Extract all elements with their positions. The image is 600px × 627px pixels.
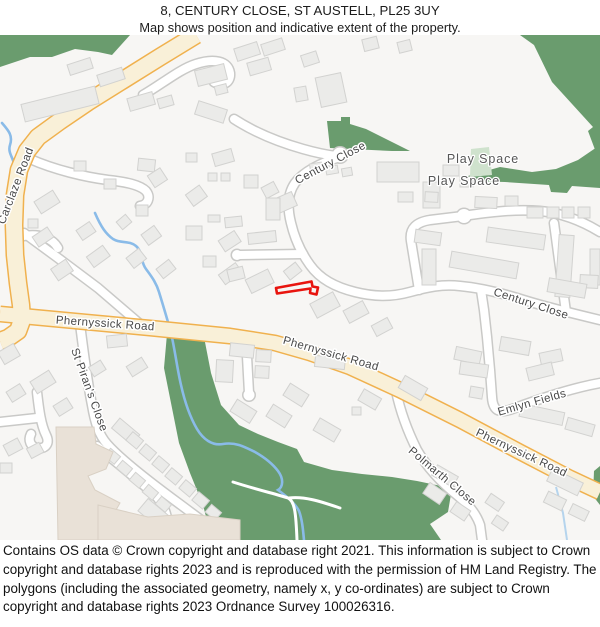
page-title: 8, CENTURY CLOSE, ST AUSTELL, PL25 3UY [0, 0, 600, 18]
copyright-notice: Contains OS data © Crown copyright and d… [0, 540, 600, 627]
area-label-play-space-1: Play Space [447, 152, 519, 166]
map-header: 8, CENTURY CLOSE, ST AUSTELL, PL25 3UY M… [0, 0, 600, 35]
area-label-play-space-2: Play Space [428, 174, 500, 188]
map-container: Carclaze Road Century Close Century Clos… [0, 35, 600, 540]
map-canvas: Carclaze Road Century Close Century Clos… [0, 35, 600, 540]
page-subtitle: Map shows position and indicative extent… [0, 18, 600, 35]
